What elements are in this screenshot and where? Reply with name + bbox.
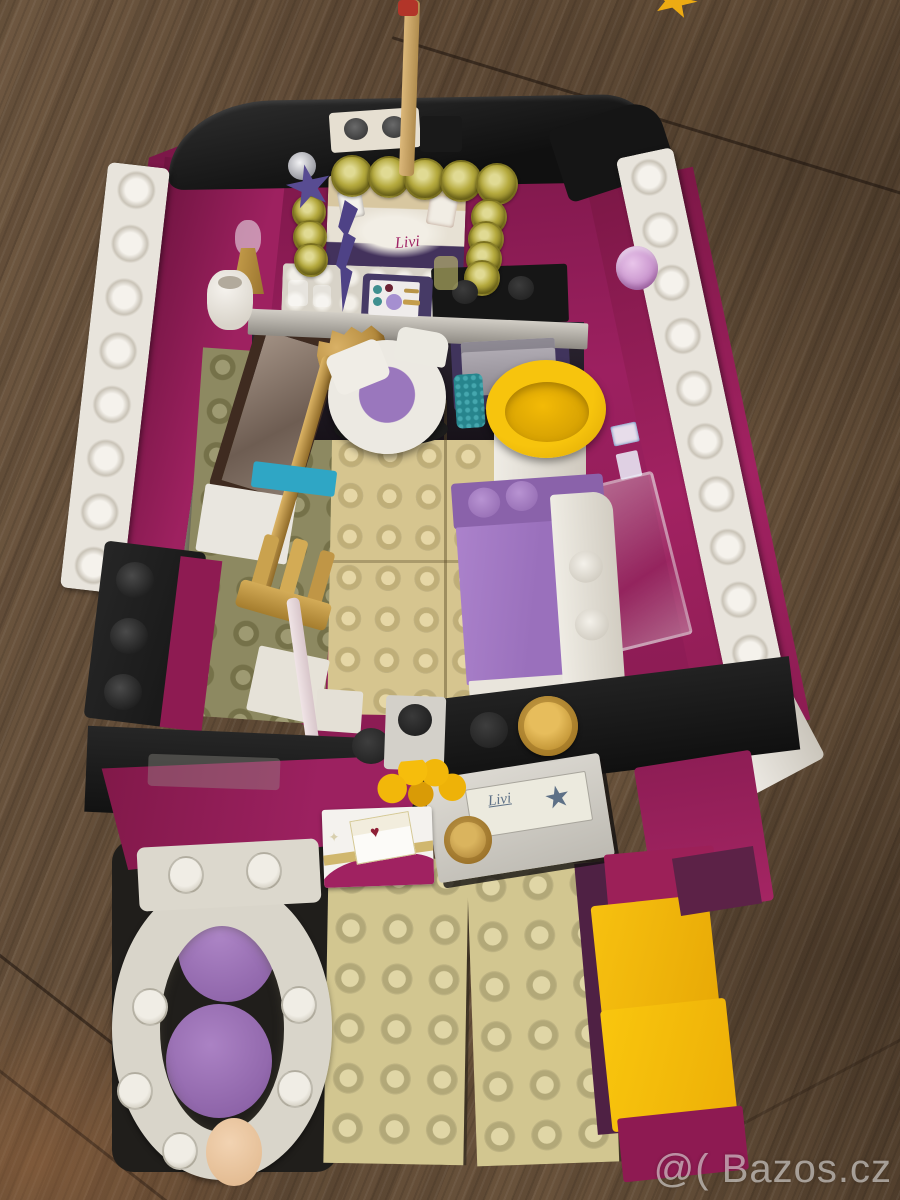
chrome-stud bbox=[288, 152, 316, 180]
yellow-bowl-inner bbox=[505, 382, 589, 442]
antenna-red-tip bbox=[398, 0, 418, 16]
peach-circle bbox=[206, 1118, 262, 1186]
trans-yellow-bottle bbox=[434, 256, 458, 290]
ring-flat-stud bbox=[168, 856, 204, 894]
white-ring-top-bar bbox=[136, 838, 321, 911]
photo-scene: Livi bbox=[0, 0, 900, 1200]
counter-stud bbox=[508, 276, 534, 300]
clear-glass bbox=[313, 285, 331, 307]
gold-fork-prong bbox=[306, 549, 335, 605]
palette-dot-teal bbox=[373, 297, 382, 306]
ring-flat-stud bbox=[132, 988, 168, 1026]
black-brick-stud bbox=[116, 562, 154, 598]
bed-blanket bbox=[456, 521, 565, 685]
top-plate-stud bbox=[344, 118, 368, 140]
bottom-tan-plate-left bbox=[323, 857, 468, 1165]
white-small-brick bbox=[315, 688, 364, 733]
door-signature: Livi bbox=[487, 790, 512, 810]
gold-fork-prong bbox=[251, 533, 280, 589]
gold-door-knob bbox=[444, 816, 492, 864]
bumper-stud bbox=[470, 712, 508, 748]
palette-dot-teal bbox=[373, 285, 382, 294]
clear-glass bbox=[288, 280, 308, 306]
bumper-smudge bbox=[147, 754, 280, 791]
envelope-sparkle-icon: ✦ bbox=[328, 829, 339, 845]
mirror-signature: Livi bbox=[394, 233, 420, 253]
clip-black-stud bbox=[398, 704, 432, 736]
top-black-notch bbox=[420, 116, 462, 152]
floor-plate-seam bbox=[444, 400, 447, 714]
palette-dot-maroon bbox=[385, 284, 393, 292]
watermark: @( Bazos.cz bbox=[654, 1147, 892, 1192]
ring-flat-stud bbox=[246, 852, 282, 890]
black-brick-stud bbox=[110, 618, 148, 654]
ring-flat-stud bbox=[162, 1132, 198, 1170]
black-brick-stud bbox=[104, 674, 142, 710]
envelope-sticker-tile: ♥ ✦ bbox=[322, 806, 435, 888]
white-cup-hole bbox=[218, 276, 242, 289]
vanity-light bbox=[294, 243, 328, 277]
ring-flat-stud bbox=[281, 986, 317, 1024]
teal-brush bbox=[453, 373, 486, 429]
vanity-light bbox=[476, 163, 518, 205]
gold-coin bbox=[518, 696, 578, 756]
yellow-flower-piece bbox=[374, 756, 468, 814]
ring-flat-stud bbox=[277, 1070, 313, 1108]
ring-flat-stud bbox=[117, 1072, 153, 1110]
palette-dot-lavender bbox=[386, 294, 402, 310]
vanity-light bbox=[331, 155, 373, 197]
